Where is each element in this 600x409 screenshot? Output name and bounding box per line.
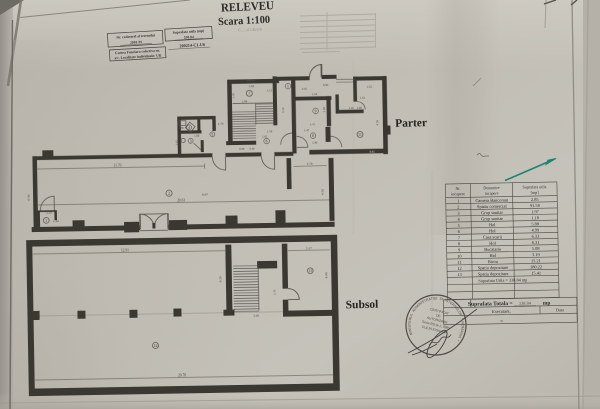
- svg-text:3.19: 3.19: [532, 252, 541, 257]
- svg-text:Bucatarie: Bucatarie: [484, 247, 501, 252]
- svg-text:4.41: 4.41: [369, 150, 375, 154]
- svg-text:6.97: 6.97: [202, 193, 208, 197]
- svg-text:6.33: 6.33: [532, 234, 541, 239]
- svg-text:1.52: 1.52: [366, 85, 372, 89]
- svg-text:Suprafata utila: Suprafata utila: [522, 184, 546, 189]
- svg-text:Data: Data: [556, 307, 564, 312]
- svg-text:7: 7: [248, 91, 250, 96]
- svg-text:3: 3: [190, 139, 192, 143]
- svg-text:1.90: 1.90: [312, 141, 318, 145]
- svg-text:1.91: 1.91: [360, 96, 366, 100]
- svg-text:0.90: 0.90: [323, 83, 329, 87]
- svg-text:5.88: 5.88: [531, 221, 540, 226]
- svg-text:11: 11: [358, 132, 362, 137]
- svg-text:1.18: 1.18: [231, 93, 235, 99]
- svg-text:11.70: 11.70: [114, 164, 122, 168]
- svg-text:6: 6: [266, 140, 268, 144]
- svg-text:Birou: Birou: [488, 259, 499, 264]
- svg-text:Spatiu depozitare: Spatiu depozitare: [478, 265, 509, 271]
- svg-text:13: 13: [308, 268, 312, 273]
- svg-text:Denumire: Denumire: [483, 185, 500, 190]
- svg-text:2.58: 2.58: [322, 107, 326, 113]
- svg-text:Spatiu depozitare: Spatiu depozitare: [478, 271, 509, 277]
- svg-text:12: 12: [457, 266, 461, 271]
- svg-text:1.63: 1.63: [187, 117, 193, 121]
- svg-text:1.11: 1.11: [310, 122, 316, 126]
- svg-text:1.73: 1.73: [273, 289, 277, 295]
- svg-text:1.18: 1.18: [531, 215, 540, 220]
- svg-text:incapere: incapere: [451, 191, 465, 196]
- svg-text:8: 8: [312, 134, 314, 138]
- svg-text:6.31: 6.31: [532, 240, 540, 245]
- svg-text:338.84: 338.84: [519, 301, 532, 306]
- svg-text:20.61: 20.61: [177, 198, 185, 202]
- svg-text:5.10: 5.10: [281, 107, 285, 113]
- svg-text:1.06: 1.06: [194, 133, 200, 137]
- svg-text:3.28: 3.28: [253, 313, 259, 317]
- svg-text:1.10: 1.10: [175, 140, 179, 146]
- svg-text:Subsol: Subsol: [346, 299, 379, 312]
- svg-text:1.47: 1.47: [304, 128, 310, 132]
- svg-text:Grup sanitar: Grup sanitar: [481, 210, 503, 215]
- svg-text:6.56: 6.56: [27, 194, 31, 200]
- svg-text:4.01: 4.01: [332, 350, 336, 356]
- svg-text:RELEVEU: RELEVEU: [221, 0, 275, 15]
- svg-text:1.10: 1.10: [349, 106, 355, 110]
- svg-text:Spatiu comercial: Spatiu comercial: [477, 204, 507, 210]
- svg-text:1: 1: [457, 198, 459, 203]
- svg-text:Parter: Parter: [395, 117, 427, 130]
- svg-text:15.41: 15.41: [531, 270, 541, 275]
- svg-text:Casa scarii: Casa scarii: [483, 234, 503, 239]
- svg-text:5: 5: [212, 133, 214, 137]
- svg-text:4.00: 4.00: [324, 272, 328, 278]
- svg-text:4.99: 4.99: [531, 227, 540, 232]
- svg-text:2.85: 2.85: [531, 197, 540, 202]
- svg-text:0.85: 0.85: [179, 127, 185, 130]
- svg-text:180.22: 180.22: [530, 264, 542, 269]
- svg-text:1.06: 1.06: [266, 264, 272, 268]
- svg-text:8.20: 8.20: [218, 276, 222, 282]
- svg-text:0.90: 0.90: [239, 147, 245, 151]
- svg-text:1.33: 1.33: [46, 211, 52, 215]
- svg-text:1.34: 1.34: [53, 219, 59, 223]
- svg-text:3.76: 3.76: [307, 161, 313, 165]
- svg-text:11: 11: [457, 260, 461, 265]
- svg-text:Camera Bancomat: Camera Bancomat: [475, 197, 508, 203]
- svg-text:3.45: 3.45: [302, 87, 308, 91]
- svg-text:1.96: 1.96: [248, 84, 254, 88]
- svg-text:Hol: Hol: [489, 222, 496, 227]
- svg-text:≈: ≈: [500, 320, 503, 325]
- svg-text:10.56: 10.56: [37, 310, 41, 318]
- svg-text:20.78: 20.78: [178, 373, 186, 377]
- svg-text:4.50: 4.50: [375, 120, 379, 126]
- svg-text:5.08: 5.08: [532, 246, 541, 251]
- svg-text:1.13: 1.13: [267, 88, 273, 92]
- svg-text:incapere: incapere: [485, 191, 499, 196]
- svg-text:9: 9: [315, 110, 317, 114]
- svg-text:Nr.: Nr.: [455, 186, 460, 191]
- svg-text:1.50: 1.50: [267, 129, 273, 133]
- svg-text:Hol: Hol: [489, 241, 496, 246]
- svg-text:93.58: 93.58: [530, 203, 541, 208]
- svg-text:Hol: Hol: [489, 228, 496, 233]
- svg-text:12.91: 12.91: [121, 248, 129, 252]
- svg-text:Grup sanitar: Grup sanitar: [481, 216, 503, 221]
- svg-text:Suprafata Totala =: Suprafata Totala =: [468, 301, 513, 308]
- svg-text:mp: mp: [543, 301, 551, 307]
- svg-text:Hol: Hol: [489, 253, 496, 258]
- svg-text:15.21: 15.21: [531, 258, 541, 263]
- svg-text:12: 12: [153, 343, 157, 348]
- svg-text:2: 2: [457, 204, 459, 209]
- svg-text:[mp]: [mp]: [531, 190, 540, 195]
- svg-text:1.34: 1.34: [312, 92, 318, 96]
- svg-text:1.98: 1.98: [357, 106, 363, 110]
- svg-text:1.70: 1.70: [218, 122, 224, 126]
- svg-text:1: 1: [287, 85, 289, 89]
- svg-text:2: 2: [168, 191, 170, 196]
- svg-text:3.17: 3.17: [306, 246, 312, 250]
- svg-text:4.50: 4.50: [321, 189, 325, 195]
- svg-text:1.97: 1.97: [531, 209, 540, 214]
- svg-text:1.84: 1.84: [242, 99, 248, 103]
- svg-text:Suprafata Utila = 338.84 m: Suprafata Utila = 338.84 mp: [478, 277, 527, 283]
- svg-text:4: 4: [188, 126, 190, 130]
- svg-text:1: 1: [45, 218, 47, 223]
- svg-text:3.30: 3.30: [249, 146, 255, 150]
- svg-text:1.62: 1.62: [262, 134, 268, 138]
- svg-text:Scara 1:100: Scara 1:100: [218, 14, 271, 28]
